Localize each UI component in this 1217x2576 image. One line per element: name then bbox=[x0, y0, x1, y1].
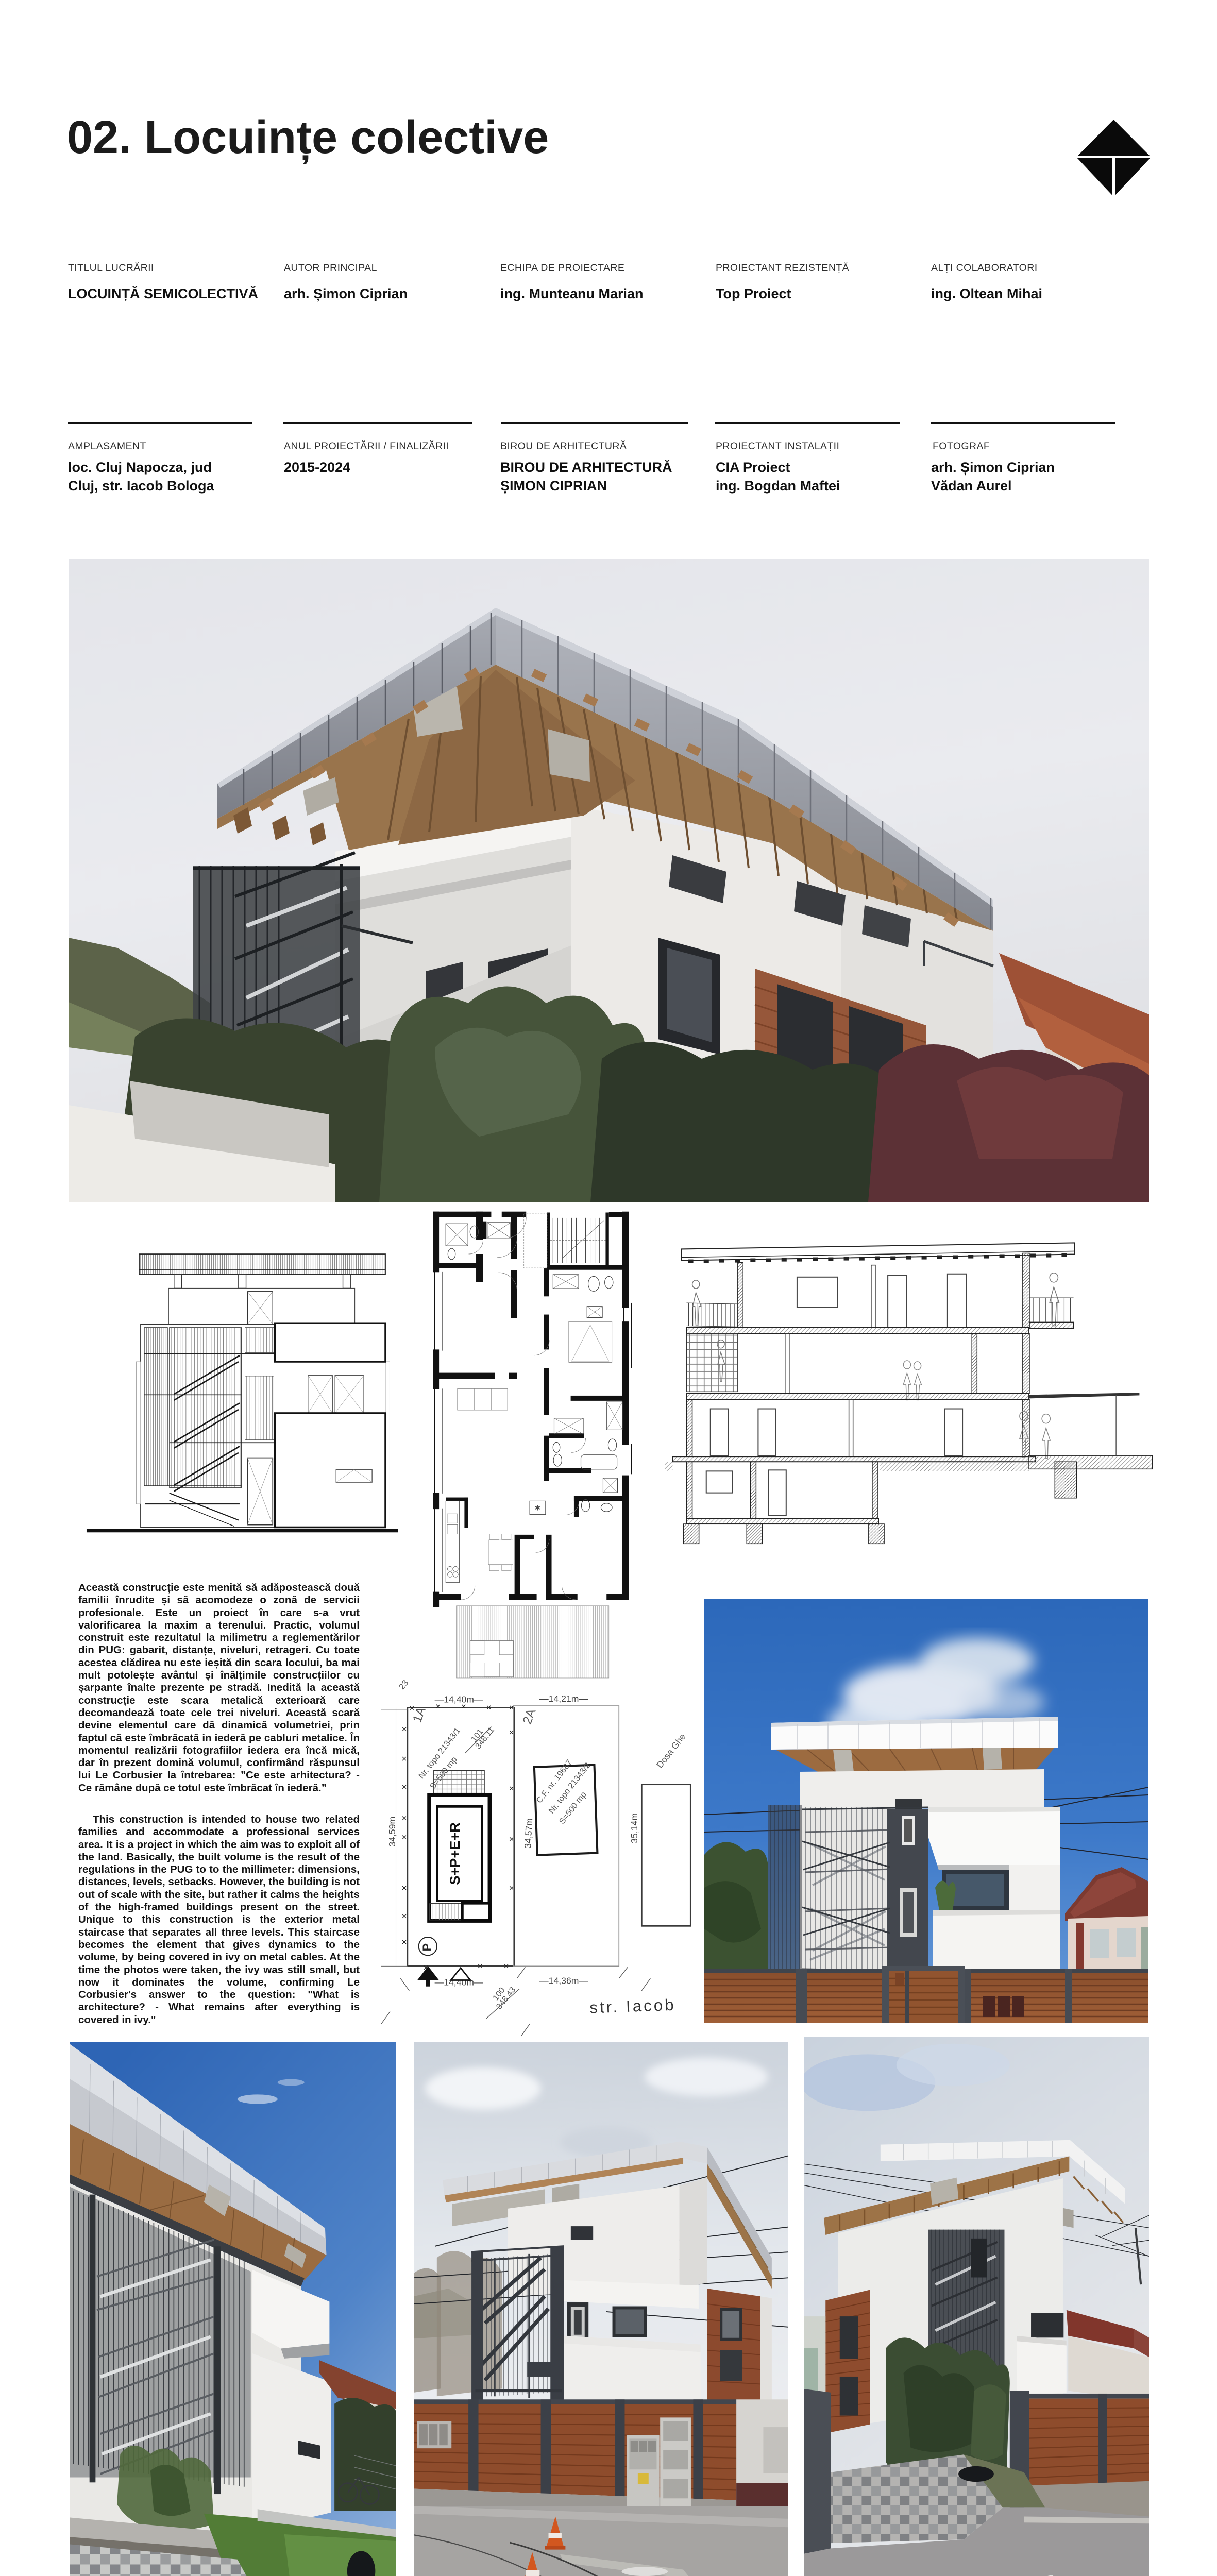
svg-text:×: × bbox=[401, 1813, 407, 1823]
svg-text:×: × bbox=[401, 1832, 407, 1842]
svg-text:23: 23 bbox=[397, 1679, 410, 1691]
svg-text:×: × bbox=[503, 1961, 509, 1971]
svg-text:×: × bbox=[401, 1937, 407, 1947]
svg-text:×: × bbox=[401, 1782, 407, 1792]
svg-text:×: × bbox=[486, 1702, 492, 1713]
svg-text:—14,40m—: —14,40m— bbox=[435, 1694, 483, 1704]
svg-text:35,14m: 35,14m bbox=[629, 1813, 639, 1843]
svg-text:str. Iacob: str. Iacob bbox=[589, 1996, 676, 2017]
svg-text:S+P+E+R: S+P+E+R bbox=[447, 1822, 463, 1885]
svg-text:×: × bbox=[401, 1883, 407, 1893]
svg-text:×: × bbox=[401, 1754, 407, 1764]
svg-text:2A: 2A bbox=[520, 1706, 539, 1726]
svg-text:✱: ✱ bbox=[535, 1504, 540, 1512]
svg-text:—14,36m—: —14,36m— bbox=[539, 1975, 588, 1986]
svg-text:34,57m: 34,57m bbox=[522, 1818, 534, 1849]
svg-text:Dosa Ghe: Dosa Ghe bbox=[654, 1732, 688, 1770]
svg-text:34,59m: 34,59m bbox=[387, 1817, 397, 1847]
svg-text:×: × bbox=[401, 1724, 407, 1734]
svg-text:×: × bbox=[478, 1961, 483, 1971]
svg-text:—14,21m—: —14,21m— bbox=[539, 1693, 588, 1704]
svg-text:×: × bbox=[401, 1911, 407, 1921]
svg-text:P: P bbox=[420, 1943, 433, 1951]
svg-text:C.F. nr. 19687: C.F. nr. 19687 bbox=[535, 1758, 574, 1805]
